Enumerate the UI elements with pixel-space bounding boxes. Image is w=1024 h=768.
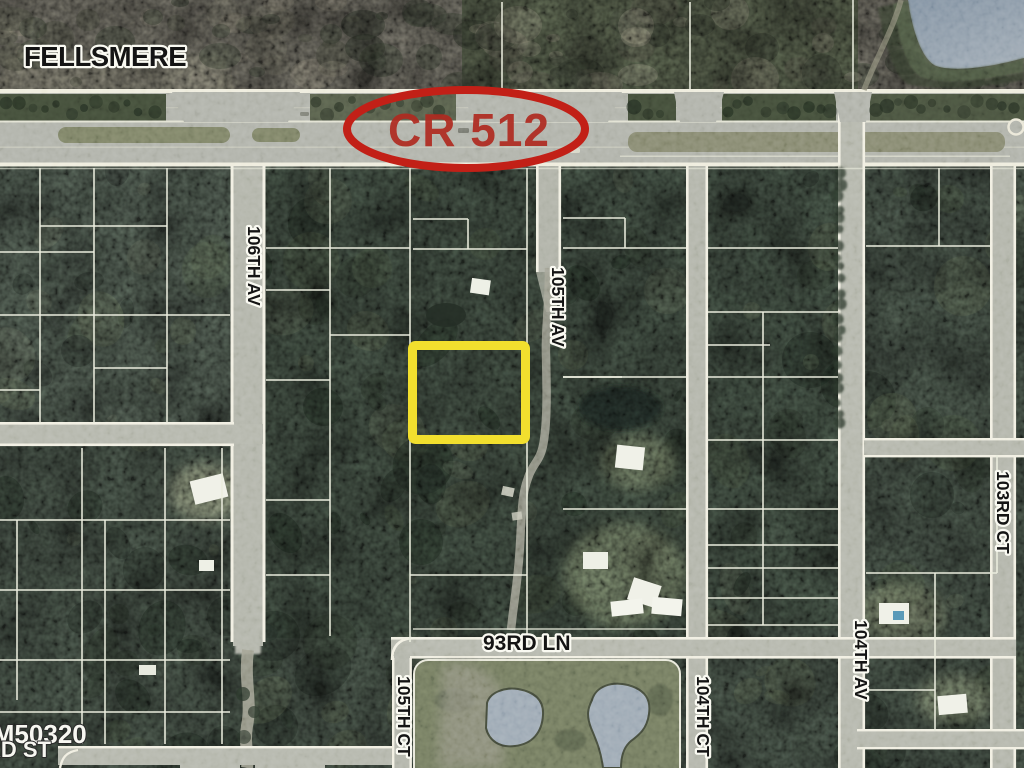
svg-text:93RD LN: 93RD LN: [483, 632, 571, 655]
svg-text:105TH AV: 105TH AV: [548, 267, 568, 347]
svg-text:RD ST: RD ST: [0, 737, 52, 762]
svg-text:FELLSMERE: FELLSMERE: [24, 41, 186, 72]
svg-text:104TH CT: 104TH CT: [693, 676, 713, 757]
svg-text:106TH AV: 106TH AV: [244, 226, 264, 306]
svg-text:104TH AV: 104TH AV: [851, 620, 871, 700]
svg-text:105TH CT: 105TH CT: [394, 676, 414, 757]
svg-text:103RD CT: 103RD CT: [993, 471, 1013, 554]
svg-text:CR 512: CR 512: [388, 104, 550, 156]
